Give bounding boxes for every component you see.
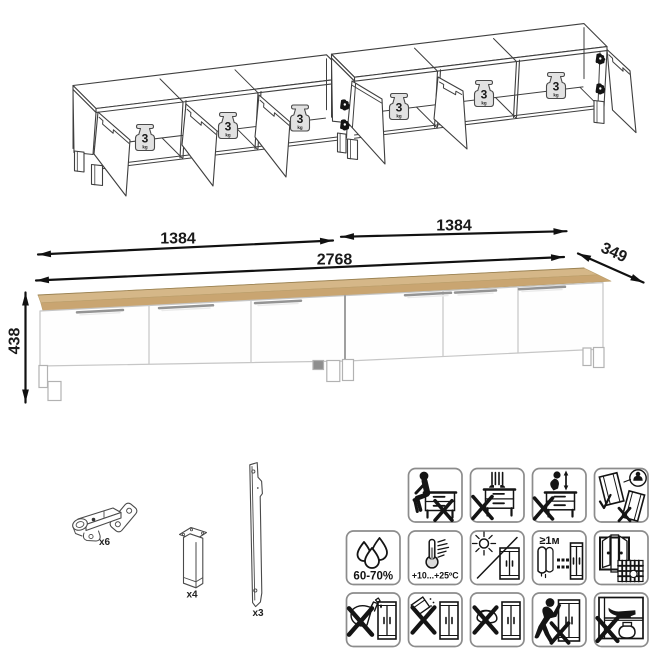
svg-text:kg: kg	[553, 93, 559, 98]
svg-text:60-70%: 60-70%	[353, 571, 393, 583]
svg-text:3: 3	[481, 88, 488, 102]
svg-text:kg: kg	[396, 114, 402, 119]
svg-text:x6: x6	[99, 537, 111, 548]
svg-text:kg: kg	[225, 133, 231, 138]
svg-text:+10...+25ºC: +10...+25ºC	[412, 571, 459, 581]
svg-text:x4: x4	[186, 590, 198, 601]
svg-text:x3: x3	[252, 608, 264, 619]
svg-text:3: 3	[142, 132, 149, 146]
svg-text:438: 438	[7, 328, 24, 355]
svg-text:349: 349	[598, 240, 629, 267]
svg-text:≥1м: ≥1м	[539, 535, 559, 547]
svg-text:3: 3	[225, 120, 232, 134]
svg-text:kg: kg	[297, 125, 303, 130]
svg-text:1384: 1384	[160, 231, 196, 248]
svg-text:3: 3	[297, 112, 304, 126]
svg-text:1384: 1384	[436, 218, 472, 235]
svg-text:kg: kg	[481, 101, 487, 106]
svg-text:3: 3	[396, 101, 403, 115]
svg-text:kg: kg	[142, 145, 148, 150]
svg-text:3: 3	[553, 80, 560, 94]
svg-text:2768: 2768	[317, 252, 353, 269]
